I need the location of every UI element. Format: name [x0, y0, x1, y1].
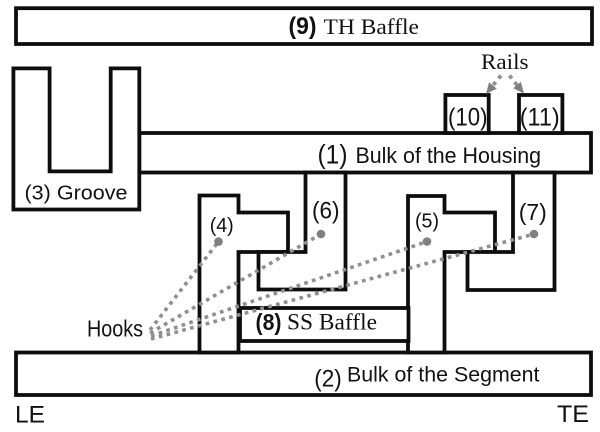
svg-text:(8): (8) — [256, 309, 282, 335]
svg-text:SS Baffle: SS Baffle — [287, 310, 377, 335]
svg-text:(9): (9) — [289, 13, 317, 40]
svg-text:TE: TE — [557, 401, 589, 428]
svg-text:Bulk of the Segment: Bulk of the Segment — [347, 363, 540, 387]
svg-text:Bulk of the Housing: Bulk of the Housing — [356, 143, 542, 168]
svg-text:(5): (5) — [415, 210, 439, 233]
svg-text:(7): (7) — [519, 199, 547, 225]
svg-text:(10): (10) — [448, 104, 488, 132]
svg-text:(2): (2) — [314, 366, 342, 393]
svg-text:Rails: Rails — [481, 49, 529, 74]
svg-text:TH Baffle: TH Baffle — [324, 14, 420, 39]
svg-text:(3) Groove: (3) Groove — [25, 183, 128, 205]
svg-text:(1): (1) — [318, 140, 348, 170]
svg-text:(4): (4) — [210, 214, 234, 237]
svg-text:LE: LE — [15, 401, 45, 428]
svg-text:(6): (6) — [312, 197, 340, 224]
svg-text:(11): (11) — [520, 104, 560, 132]
svg-text:Hooks: Hooks — [87, 316, 143, 342]
